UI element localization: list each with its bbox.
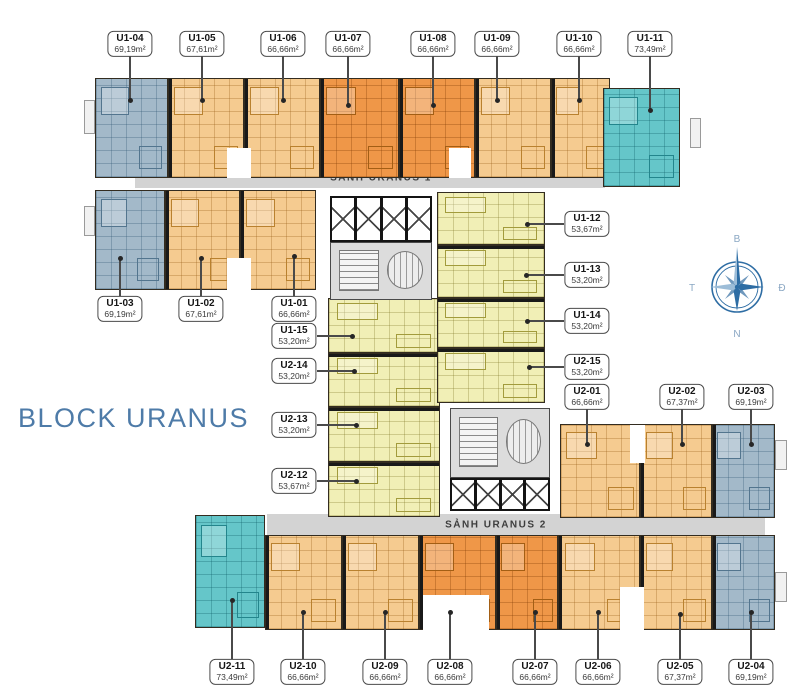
leader-dot <box>525 222 530 227</box>
unit-U1-10 <box>551 78 610 178</box>
unit-area-text: 66,66m² <box>563 44 594 54</box>
unit-label-U1-09: U1-0966,66m² <box>474 31 519 57</box>
label-leader-line <box>750 409 752 444</box>
label-leader-line <box>534 612 536 660</box>
leader-dot <box>292 254 297 259</box>
label-leader-line <box>449 612 451 660</box>
unit-label-U1-11: U1-1173,49m² <box>627 31 672 57</box>
unit-U1-09 <box>475 78 551 178</box>
unit-area-text: 66,66m² <box>287 672 318 682</box>
unit-label-U1-10: U1-1066,66m² <box>556 31 601 57</box>
facade-notch <box>423 595 489 630</box>
compass-east-label: Đ <box>778 283 785 294</box>
elevator-shaft-icon <box>408 198 430 240</box>
unit-area-text: 67,37m² <box>664 672 695 682</box>
unit-area-text: 66,66m² <box>417 44 448 54</box>
unit-id-text: U2-06 <box>582 661 613 673</box>
leader-dot <box>281 98 286 103</box>
unit-label-U1-13: U1-1353,20m² <box>564 262 609 288</box>
unit-U2-03 <box>712 424 775 518</box>
leader-dot <box>200 98 205 103</box>
compass-south-label: N <box>733 329 740 340</box>
unit-label-U1-05: U1-0567,61m² <box>179 31 224 57</box>
unit-id-text: U2-11 <box>216 661 247 673</box>
unit-label-U1-14: U1-1453,20m² <box>564 308 609 334</box>
elevator-shaft-icon <box>452 480 474 509</box>
leader-dot <box>383 610 388 615</box>
unit-U2-13 <box>328 407 440 462</box>
leader-dot <box>354 423 359 428</box>
elevator-bank <box>330 196 432 242</box>
unit-label-U1-04: U1-0469,19m² <box>107 31 152 57</box>
unit-U1-04 <box>95 78 168 178</box>
unit-id-text: U2-07 <box>519 661 550 673</box>
floor-plan-block-uranus: BLOCK URANUS B Đ N T SẢNH URANUS 1SẢNH U… <box>0 0 800 699</box>
leader-dot <box>527 365 532 370</box>
unit-id-text: U1-10 <box>563 33 594 45</box>
leader-dot <box>199 256 204 261</box>
unit-area-text: 66,66m² <box>571 397 602 407</box>
label-leader-line <box>526 274 564 276</box>
unit-label-U2-03: U2-0369,19m² <box>728 384 773 410</box>
unit-label-U1-12: U1-1253,67m² <box>564 211 609 237</box>
unit-id-text: U2-01 <box>571 386 602 398</box>
facade-notch <box>227 148 251 178</box>
elevator-shaft-icon <box>526 480 548 509</box>
unit-label-U2-02: U2-0267,37m² <box>659 384 704 410</box>
unit-id-text: U2-14 <box>278 360 309 372</box>
leader-dot <box>525 319 530 324</box>
unit-id-text: U2-09 <box>369 661 400 673</box>
unit-id-text: U2-12 <box>278 470 309 482</box>
leader-dot <box>680 442 685 447</box>
leader-dot <box>301 610 306 615</box>
unit-area-text: 67,61m² <box>185 309 216 319</box>
unit-id-text: U2-15 <box>571 356 602 368</box>
label-leader-line <box>681 409 683 444</box>
unit-id-text: U1-14 <box>571 310 602 322</box>
unit-area-text: 66,66m² <box>434 672 465 682</box>
unit-label-U2-13: U2-1353,20m² <box>271 412 316 438</box>
unit-label-U2-08: U2-0866,66m² <box>427 659 472 685</box>
label-leader-line <box>529 366 564 368</box>
unit-U1-13 <box>437 245 545 298</box>
elevator-bank <box>450 478 550 511</box>
unit-id-text: U1-01 <box>278 298 309 310</box>
label-leader-line <box>597 612 599 660</box>
unit-id-text: U1-03 <box>104 298 135 310</box>
unit-area-text: 53,20m² <box>571 321 602 331</box>
unit-label-U2-07: U2-0766,66m² <box>512 659 557 685</box>
leader-dot <box>495 98 500 103</box>
unit-area-text: 53,20m² <box>278 336 309 346</box>
unit-area-text: 66,66m² <box>369 672 400 682</box>
unit-U2-15 <box>437 348 545 403</box>
unit-area-text: 66,66m² <box>267 44 298 54</box>
unit-area-text: 69,19m² <box>735 672 766 682</box>
unit-id-text: U1-15 <box>278 325 309 337</box>
unit-U2-09 <box>342 535 419 630</box>
unit-U1-01 <box>240 190 316 290</box>
unit-area-text: 69,19m² <box>104 309 135 319</box>
page-title: BLOCK URANUS <box>18 403 249 434</box>
elevator-shaft-icon <box>357 198 379 240</box>
label-leader-line <box>317 424 356 426</box>
unit-area-text: 66,66m² <box>481 44 512 54</box>
unit-U2-07 <box>496 535 558 630</box>
leader-dot <box>431 103 436 108</box>
unit-U1-11 <box>603 88 680 187</box>
unit-area-text: 73,49m² <box>216 672 247 682</box>
leader-dot <box>678 612 683 617</box>
facade-notch <box>227 258 251 290</box>
unit-area-text: 66,66m² <box>332 44 363 54</box>
unit-area-text: 73,49m² <box>634 44 665 54</box>
balcony <box>775 440 787 470</box>
label-leader-line <box>129 56 131 100</box>
label-leader-line <box>347 56 349 105</box>
unit-label-U1-07: U1-0766,66m² <box>325 31 370 57</box>
facade-notch <box>620 587 644 630</box>
unit-label-U2-01: U2-0166,66m² <box>564 384 609 410</box>
elevator-shaft-icon <box>332 198 354 240</box>
unit-U2-01 <box>560 424 640 518</box>
unit-label-U1-06: U1-0666,66m² <box>260 31 305 57</box>
unit-area-text: 69,19m² <box>114 44 145 54</box>
unit-label-U2-09: U2-0966,66m² <box>362 659 407 685</box>
leader-dot <box>350 334 355 339</box>
unit-label-U2-05: U2-0567,37m² <box>657 659 702 685</box>
balcony <box>690 118 701 148</box>
unit-id-text: U2-02 <box>666 386 697 398</box>
unit-label-U1-15: U1-1553,20m² <box>271 323 316 349</box>
unit-U2-04 <box>712 535 775 630</box>
unit-label-U2-14: U2-1453,20m² <box>271 358 316 384</box>
leader-dot <box>596 610 601 615</box>
unit-label-U2-12: U2-1253,67m² <box>271 468 316 494</box>
balcony <box>84 206 95 236</box>
unit-label-U2-10: U2-1066,66m² <box>280 659 325 685</box>
unit-label-U2-11: U2-1173,49m² <box>209 659 254 685</box>
unit-label-U2-04: U2-0469,19m² <box>728 659 773 685</box>
label-leader-line <box>119 258 121 297</box>
label-leader-line <box>527 223 564 225</box>
label-leader-line <box>750 612 752 660</box>
leader-dot <box>128 98 133 103</box>
label-leader-line <box>432 56 434 105</box>
unit-label-U1-08: U1-0866,66m² <box>410 31 455 57</box>
unit-id-text: U1-11 <box>634 33 665 45</box>
label-leader-line <box>527 320 564 322</box>
unit-area-text: 66,66m² <box>278 309 309 319</box>
label-leader-line <box>293 256 295 297</box>
leader-dot <box>749 442 754 447</box>
unit-U2-14 <box>328 353 440 407</box>
compass-rose-icon: B Đ N T <box>682 232 792 342</box>
leader-dot <box>533 610 538 615</box>
label-leader-line <box>201 56 203 100</box>
leader-dot <box>577 98 582 103</box>
unit-label-U2-15: U2-1553,20m² <box>564 354 609 380</box>
unit-id-text: U2-08 <box>434 661 465 673</box>
unit-id-text: U1-02 <box>185 298 216 310</box>
unit-label-U1-03: U1-0369,19m² <box>97 296 142 322</box>
elevator-shaft-icon <box>502 480 524 509</box>
label-leader-line <box>282 56 284 100</box>
unit-U1-15 <box>328 298 440 353</box>
unit-area-text: 53,20m² <box>571 367 602 377</box>
unit-U1-12 <box>437 192 545 245</box>
leader-dot <box>585 442 590 447</box>
unit-area-text: 69,19m² <box>735 397 766 407</box>
unit-id-text: U1-04 <box>114 33 145 45</box>
label-leader-line <box>586 409 588 444</box>
label-leader-line <box>317 335 352 337</box>
label-leader-line <box>496 56 498 100</box>
unit-area-text: 67,61m² <box>186 44 217 54</box>
unit-id-text: U1-13 <box>571 264 602 276</box>
leader-dot <box>346 103 351 108</box>
unit-label-U2-06: U2-0666,66m² <box>575 659 620 685</box>
unit-id-text: U2-04 <box>735 661 766 673</box>
unit-area-text: 53,67m² <box>571 224 602 234</box>
leader-dot <box>448 610 453 615</box>
unit-U2-12 <box>328 462 440 517</box>
unit-U1-03 <box>95 190 165 290</box>
unit-id-text: U1-07 <box>332 33 363 45</box>
leader-dot <box>749 610 754 615</box>
label-leader-line <box>231 600 233 660</box>
stair-core <box>450 408 550 478</box>
unit-area-text: 66,66m² <box>582 672 613 682</box>
label-leader-line <box>317 370 354 372</box>
label-leader-line <box>317 480 356 482</box>
label-leader-line <box>200 258 202 297</box>
unit-area-text: 53,20m² <box>278 371 309 381</box>
leader-dot <box>648 108 653 113</box>
facade-notch <box>630 425 645 463</box>
unit-id-text: U2-03 <box>735 386 766 398</box>
unit-id-text: U1-05 <box>186 33 217 45</box>
leader-dot <box>230 598 235 603</box>
elevator-shaft-icon <box>383 198 405 240</box>
unit-label-U1-01: U1-0166,66m² <box>271 296 316 322</box>
unit-id-text: U2-10 <box>287 661 318 673</box>
unit-area-text: 53,67m² <box>278 481 309 491</box>
unit-U1-07 <box>320 78 399 178</box>
leader-dot <box>524 273 529 278</box>
corridor-label: SẢNH URANUS 2 <box>445 519 547 530</box>
label-leader-line <box>578 56 580 100</box>
unit-area-text: 67,37m² <box>666 397 697 407</box>
unit-U2-02 <box>640 424 712 518</box>
balcony <box>775 572 787 602</box>
leader-dot <box>118 256 123 261</box>
label-leader-line <box>302 612 304 660</box>
unit-id-text: U1-06 <box>267 33 298 45</box>
unit-label-U1-02: U1-0267,61m² <box>178 296 223 322</box>
compass-west-label: T <box>689 283 695 294</box>
unit-U2-11 <box>195 515 265 628</box>
unit-area-text: 53,20m² <box>278 425 309 435</box>
balcony <box>84 100 95 134</box>
unit-id-text: U1-12 <box>571 213 602 225</box>
label-leader-line <box>679 614 681 660</box>
leader-dot <box>352 369 357 374</box>
unit-id-text: U2-05 <box>664 661 695 673</box>
elevator-shaft-icon <box>477 480 499 509</box>
label-leader-line <box>649 56 651 110</box>
stair-core <box>330 242 432 300</box>
unit-id-text: U1-08 <box>417 33 448 45</box>
leader-dot <box>354 479 359 484</box>
unit-U2-05 <box>640 535 712 630</box>
unit-area-text: 53,20m² <box>571 275 602 285</box>
compass-north-label: B <box>734 234 741 245</box>
unit-id-text: U2-13 <box>278 414 309 426</box>
unit-area-text: 66,66m² <box>519 672 550 682</box>
facade-notch <box>449 148 471 178</box>
unit-id-text: U1-09 <box>481 33 512 45</box>
label-leader-line <box>384 612 386 660</box>
